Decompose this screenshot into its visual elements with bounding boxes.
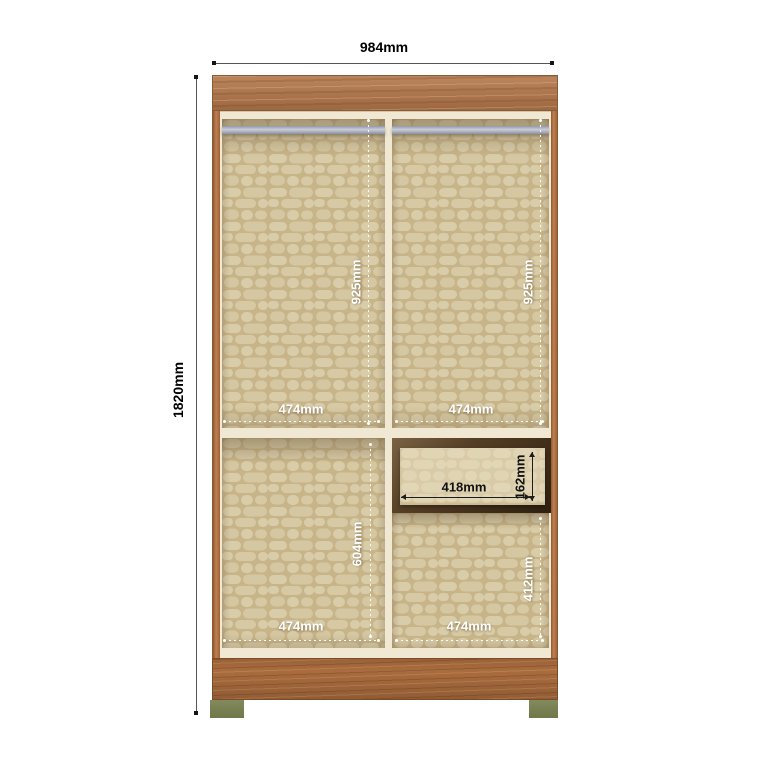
dimension-endpoint bbox=[550, 61, 554, 65]
upper-left-width-label: 474mm bbox=[279, 402, 324, 417]
left-side-panel bbox=[212, 111, 220, 658]
dimension-endpoint bbox=[212, 61, 216, 65]
bottom-plinth bbox=[212, 658, 558, 700]
upper-left-width-dimension-line bbox=[224, 421, 379, 422]
lower-right-height-dimension-line bbox=[540, 518, 541, 637]
top-panel bbox=[212, 75, 558, 111]
wardrobe-dimension-diagram: 984mm 1820mm 925mm 925mm 474mm 474mm 604… bbox=[0, 0, 768, 768]
dimension-endpoint bbox=[194, 75, 198, 79]
lower-left-height-label: 604mm bbox=[350, 522, 365, 567]
overall-width-label: 984mm bbox=[360, 39, 408, 55]
left-foot bbox=[210, 700, 244, 718]
drawer-width-label: 418mm bbox=[442, 480, 487, 495]
right-side-panel bbox=[551, 111, 558, 658]
overall-width-dimension-line bbox=[213, 63, 553, 64]
overall-height-label: 1820mm bbox=[170, 362, 186, 418]
lower-left-width-label: 474mm bbox=[279, 619, 324, 634]
hanging-rod-left bbox=[222, 126, 385, 134]
drawer-height-dimension-line bbox=[532, 452, 533, 501]
lower-left-width-dimension-line bbox=[224, 640, 379, 641]
upper-right-height-label: 925mm bbox=[521, 260, 536, 305]
drawer-width-dimension-line bbox=[401, 497, 530, 498]
hanging-rod-right bbox=[392, 126, 549, 134]
upper-right-width-dimension-line bbox=[396, 421, 543, 422]
upper-right-height-dimension-line bbox=[540, 120, 541, 424]
lower-right-width-label: 474mm bbox=[447, 619, 492, 634]
upper-left-height-dimension-line bbox=[368, 120, 369, 424]
dimension-endpoint bbox=[194, 711, 198, 715]
right-foot bbox=[529, 700, 558, 718]
lower-left-height-dimension-line bbox=[370, 444, 371, 637]
lower-right-height-label: 412mm bbox=[521, 557, 536, 602]
upper-right-width-label: 474mm bbox=[449, 402, 494, 417]
upper-left-height-label: 925mm bbox=[349, 260, 364, 305]
drawer-height-label: 162mm bbox=[513, 455, 528, 500]
overall-height-dimension-line bbox=[196, 76, 197, 714]
lower-right-width-dimension-line bbox=[396, 640, 543, 641]
